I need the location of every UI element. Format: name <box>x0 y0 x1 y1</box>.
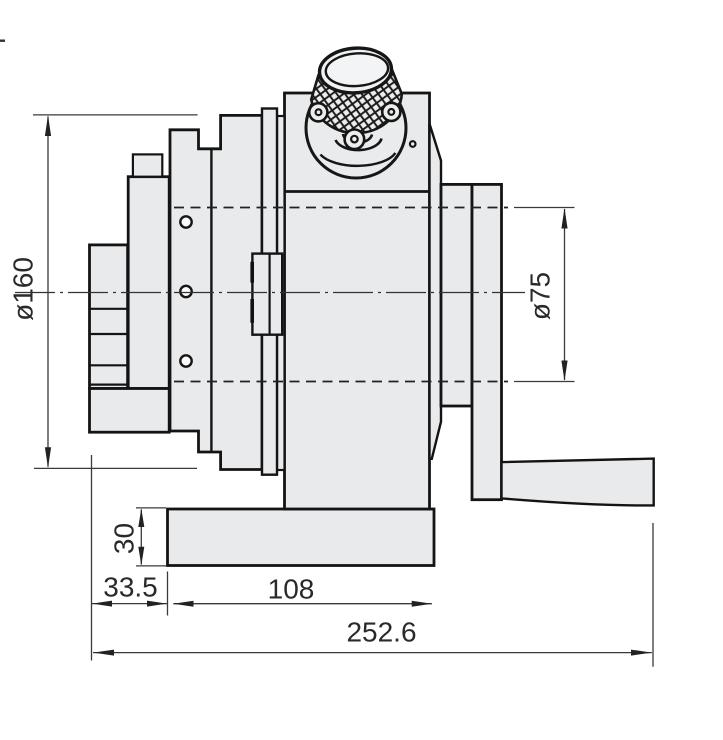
svg-text:252.6: 252.6 <box>346 617 416 648</box>
svg-text:33.5: 33.5 <box>103 571 158 602</box>
svg-text:108: 108 <box>268 574 315 605</box>
svg-text:30: 30 <box>109 523 140 554</box>
svg-text:ø160: ø160 <box>8 257 39 321</box>
svg-text:ø75: ø75 <box>525 272 556 320</box>
